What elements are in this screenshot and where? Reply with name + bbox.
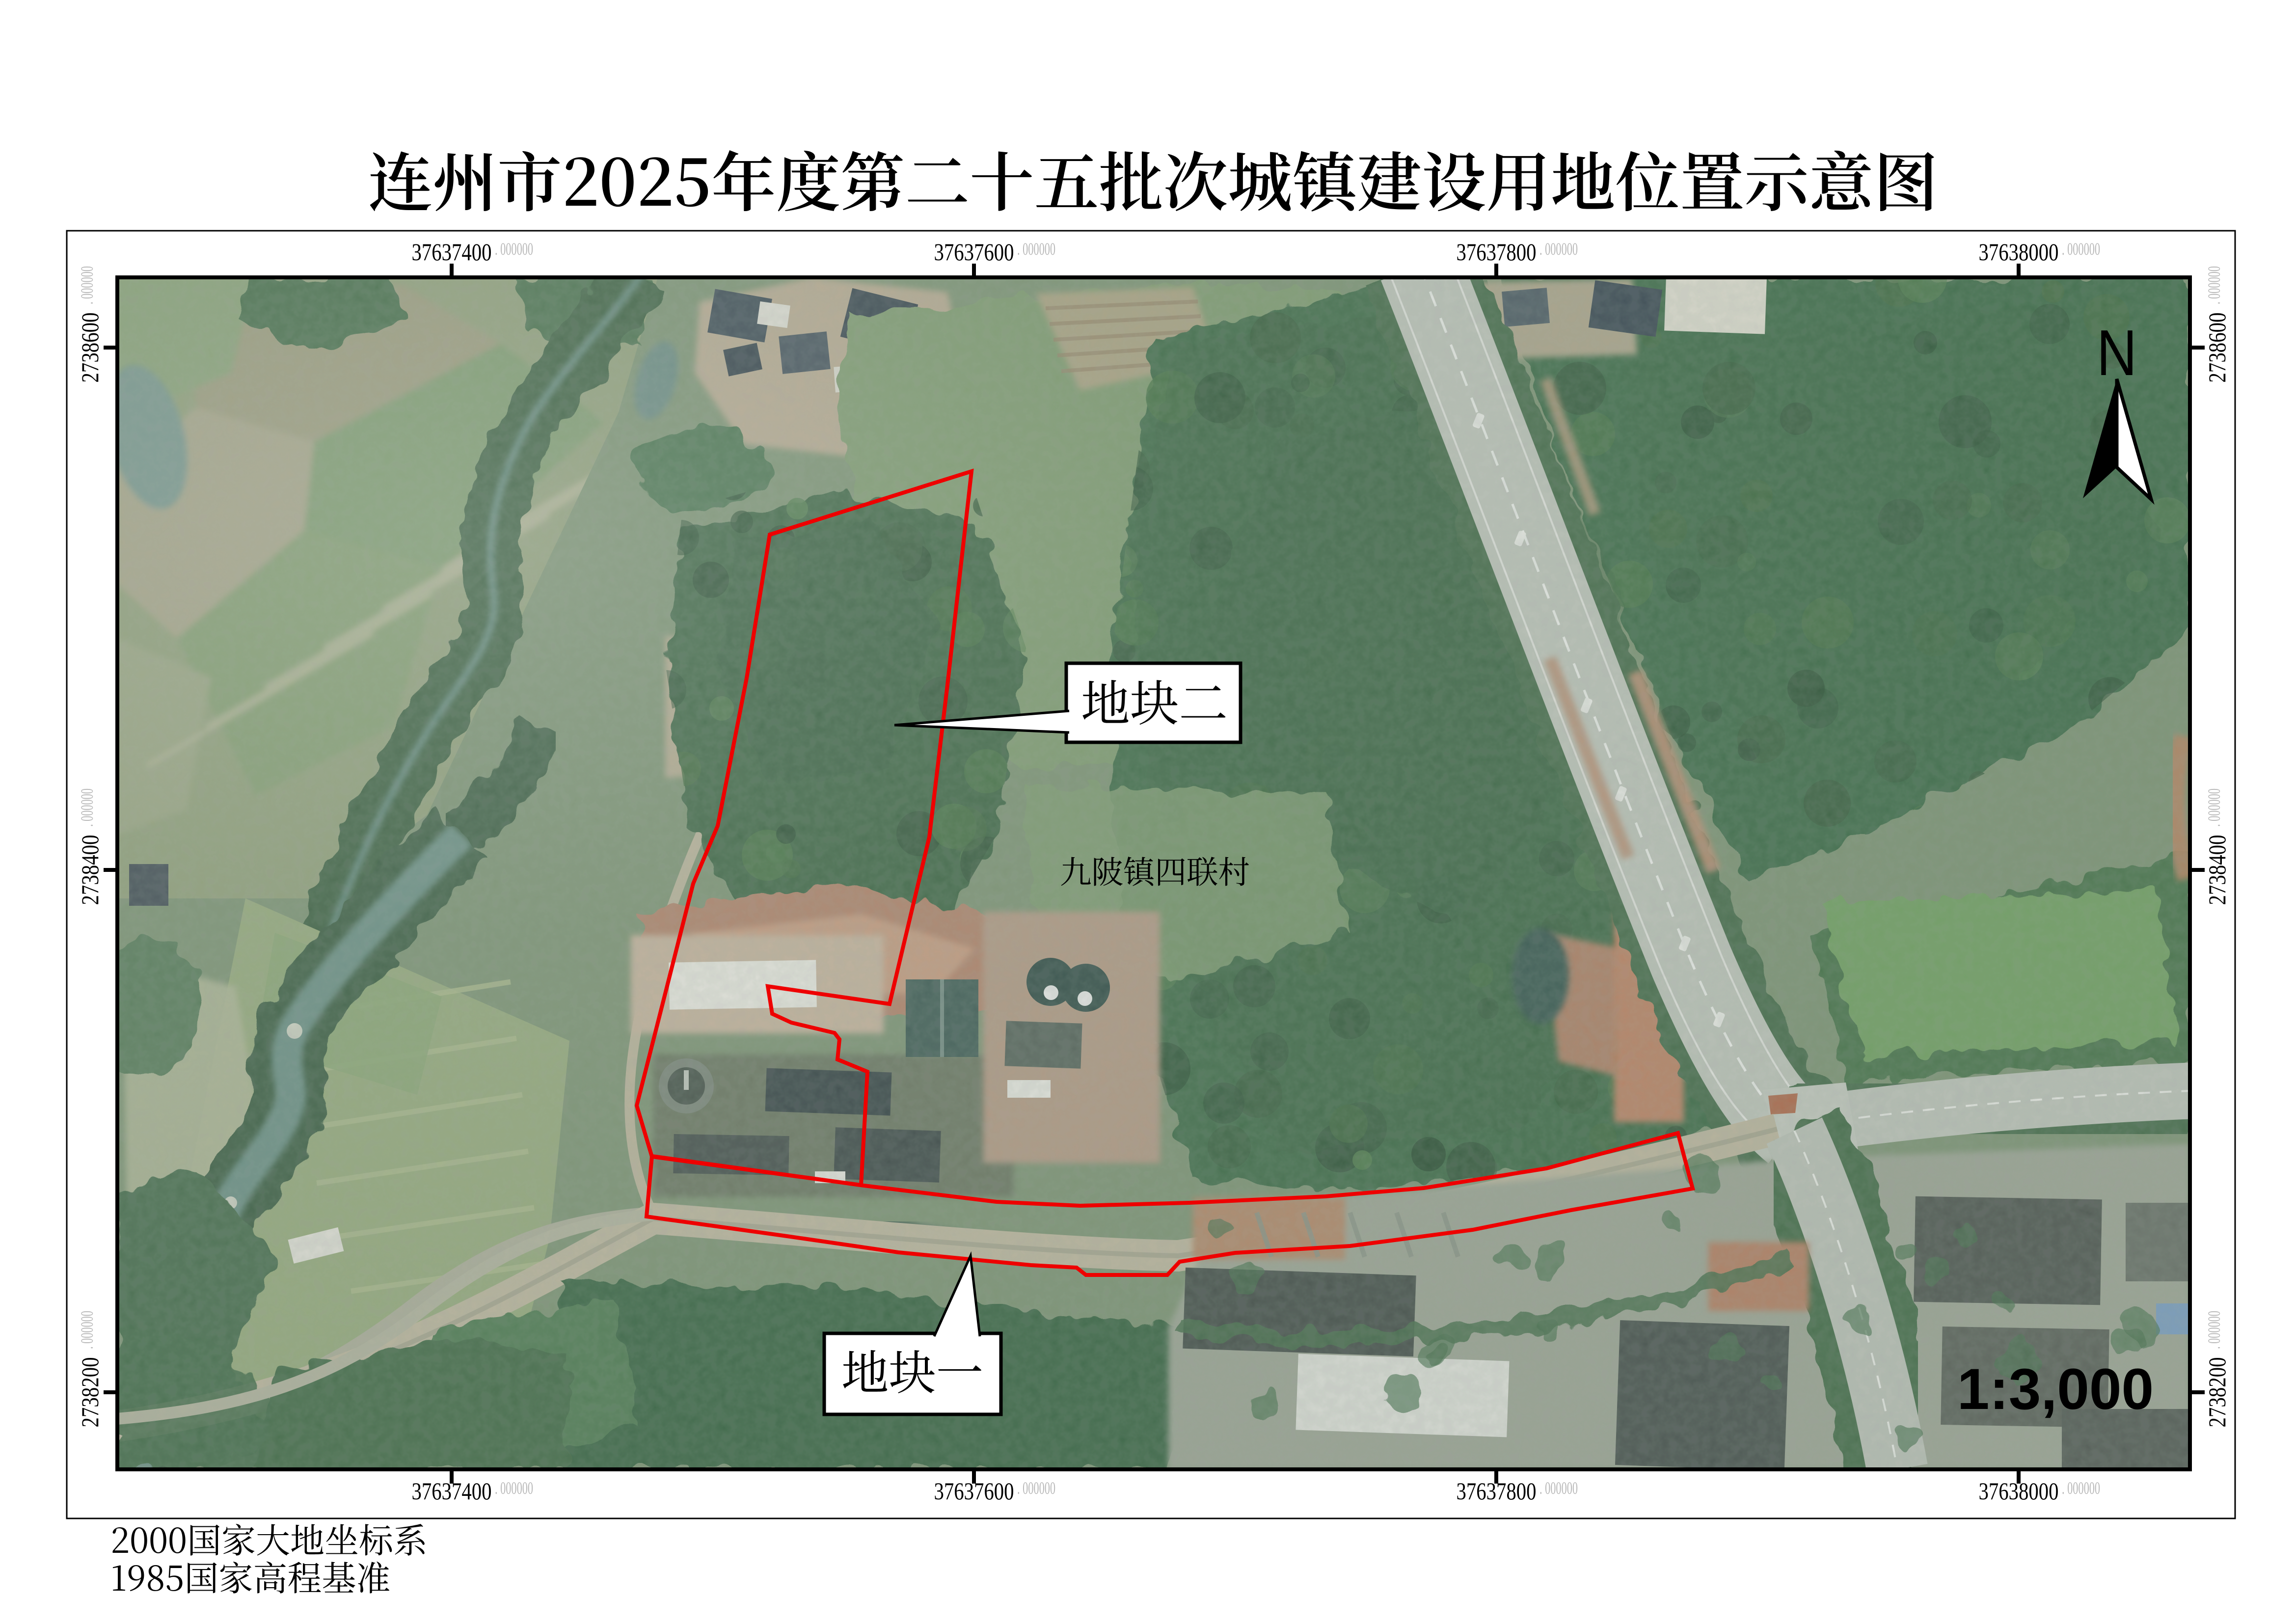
- svg-text:. 000000: . 000000: [77, 266, 97, 304]
- svg-text:. 000000: . 000000: [1539, 239, 1578, 259]
- svg-text:N: N: [2097, 317, 2137, 389]
- svg-text:37637600: 37637600: [934, 238, 1014, 266]
- svg-text:. 000000: . 000000: [77, 788, 97, 827]
- svg-text:. 000000: . 000000: [77, 1311, 97, 1349]
- svg-text:2738200: 2738200: [2203, 1357, 2231, 1428]
- svg-text:37638000: 37638000: [1979, 238, 2059, 266]
- svg-text:37637400: 37637400: [412, 238, 492, 266]
- svg-text:2738200: 2738200: [76, 1357, 104, 1428]
- svg-text:. 000000: . 000000: [2204, 266, 2224, 304]
- svg-text:. 000000: . 000000: [2062, 1478, 2100, 1498]
- svg-text:1:3,000: 1:3,000: [1957, 1357, 2154, 1422]
- svg-text:. 000000: . 000000: [495, 1478, 533, 1498]
- svg-text:. 000000: . 000000: [2204, 1311, 2224, 1349]
- svg-text:. 000000: . 000000: [1539, 1478, 1578, 1498]
- svg-text:2738600: 2738600: [2203, 313, 2231, 383]
- svg-text:. 000000: . 000000: [2062, 239, 2100, 259]
- svg-text:2738400: 2738400: [2203, 835, 2231, 905]
- svg-text:2738400: 2738400: [76, 835, 104, 905]
- svg-text:2738600: 2738600: [76, 313, 104, 383]
- svg-text:. 000000: . 000000: [1017, 239, 1055, 259]
- svg-text:. 000000: . 000000: [1017, 1478, 1055, 1498]
- svg-text:. 000000: . 000000: [495, 239, 533, 259]
- svg-text:37637800: 37637800: [1457, 238, 1537, 266]
- svg-text:. 000000: . 000000: [2204, 788, 2224, 827]
